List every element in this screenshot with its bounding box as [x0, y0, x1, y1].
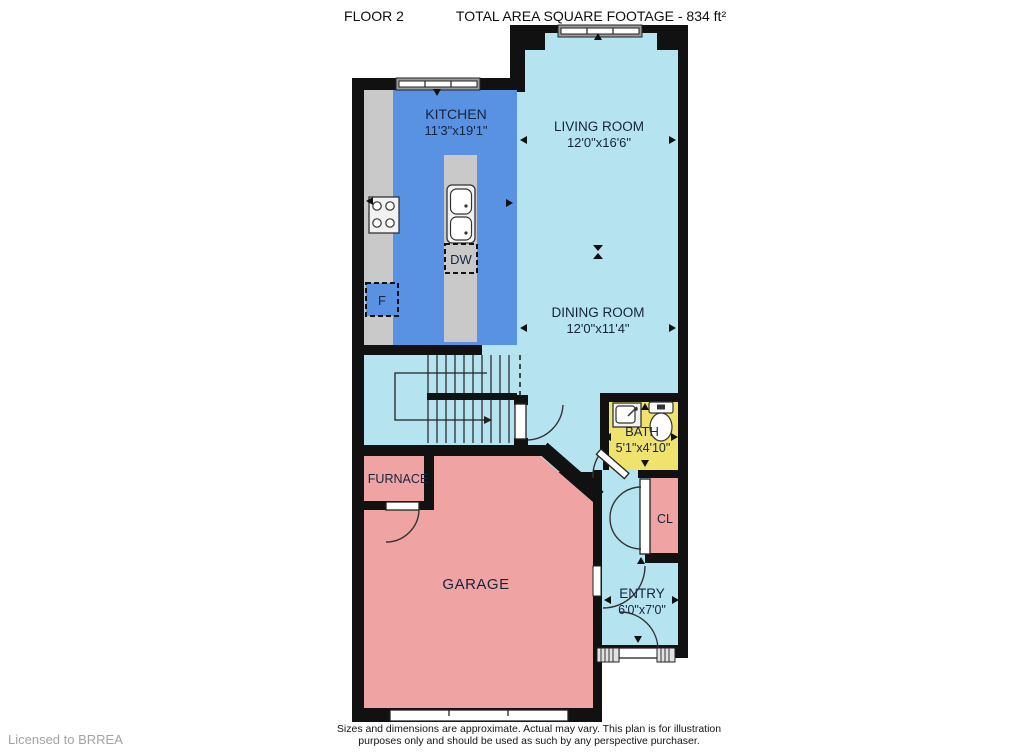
furnace-label: FURNACE: [368, 472, 428, 486]
disclaimer-line-1: Sizes and dimensions are approximate. Ac…: [337, 723, 721, 735]
kitchen-window: [396, 78, 480, 90]
floor-plan-svg: FLOOR 2 TOTAL AREA SQUARE FOOTAGE - 834 …: [0, 0, 1024, 754]
dining-room-dims: 12'0"x11'4": [566, 321, 629, 336]
entry-dims: 6'0"x7'0": [618, 603, 666, 617]
fridge-icon: F: [366, 283, 398, 316]
total-area-title: TOTAL AREA SQUARE FOOTAGE - 834 ft²: [456, 8, 727, 24]
license-text: Licensed to BRREA: [8, 732, 123, 747]
garage-door: [390, 710, 568, 721]
stove-icon: [369, 197, 399, 233]
kitchen-island: [444, 155, 477, 342]
kitchen-label: KITCHEN: [425, 106, 486, 122]
entry-label: ENTRY: [619, 586, 665, 601]
fridge-label: F: [378, 293, 386, 308]
kitchen-dims: 11'3"x19'1": [424, 123, 487, 138]
bath-dims: 5'1"x4'10": [616, 441, 671, 455]
garage-label: GARAGE: [442, 576, 509, 593]
dishwasher-label: DW: [450, 252, 472, 267]
floor-title: FLOOR 2: [344, 8, 404, 24]
living-room-dims: 12'0"x16'6": [567, 135, 631, 150]
living-room-window: [558, 25, 642, 37]
entry-side-window: [593, 566, 601, 596]
closet-label: CL: [657, 512, 673, 526]
bath-label: BATH: [625, 424, 659, 439]
disclaimer-line-2: purposes only and should be used as such…: [358, 735, 699, 747]
living-room-label: LIVING ROOM: [554, 119, 644, 134]
kitchen-sink-icon: [447, 185, 475, 243]
floor-plan-page: FLOOR 2 TOTAL AREA SQUARE FOOTAGE - 834 …: [0, 0, 1024, 754]
dining-room-label: DINING ROOM: [552, 305, 645, 320]
